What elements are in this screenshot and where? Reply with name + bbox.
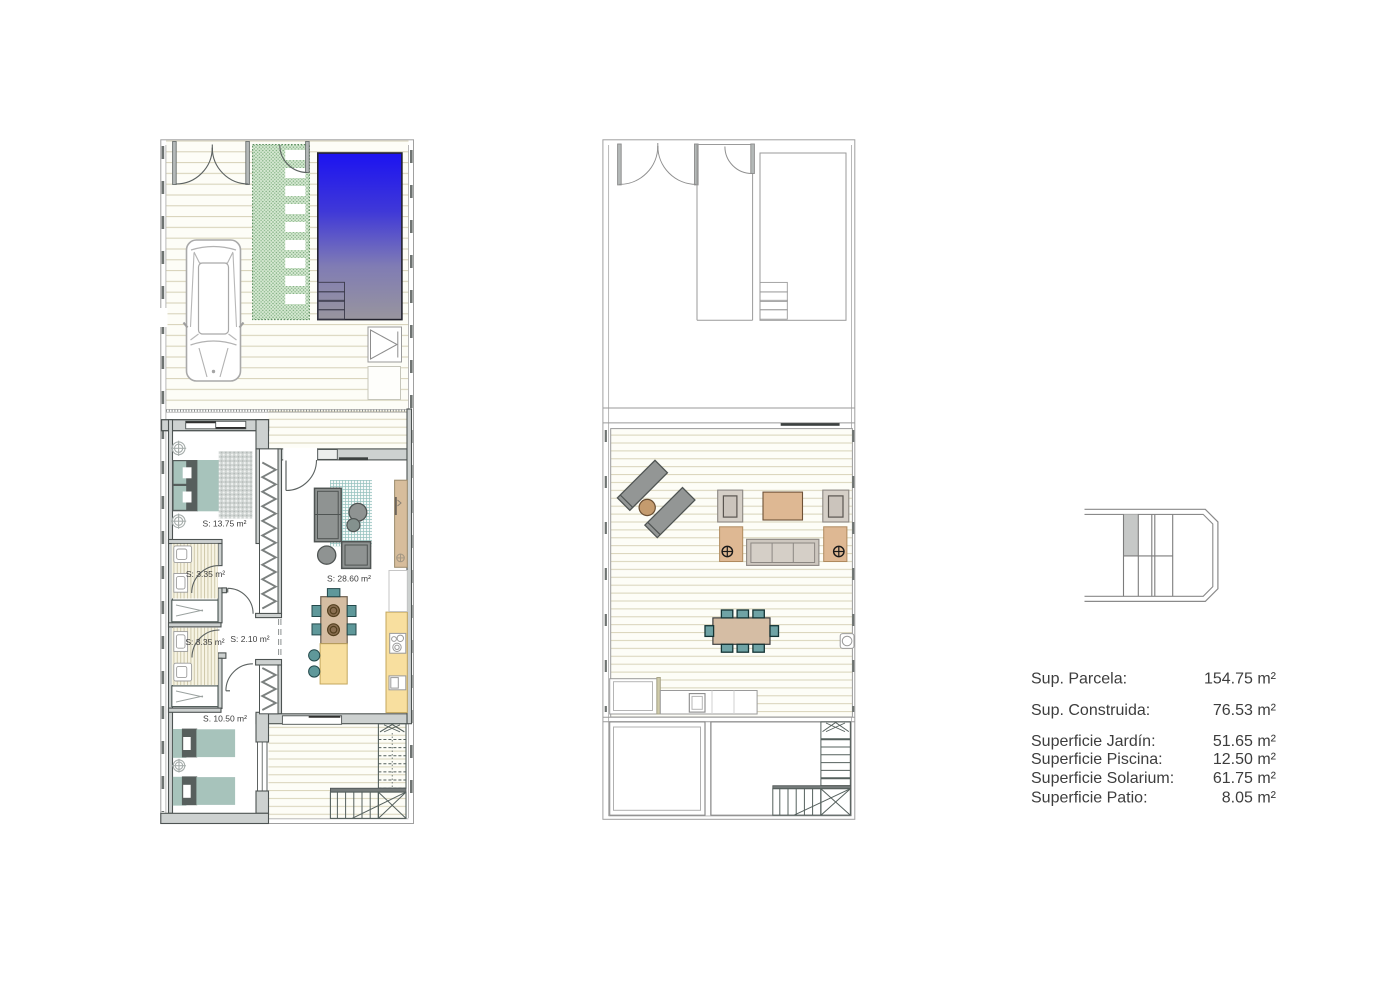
svg-text:51.65 m²: 51.65 m² (1213, 733, 1277, 750)
svg-text:S: 28.60 m²: S: 28.60 m² (327, 573, 371, 583)
svg-text:154.75 m²: 154.75 m² (1204, 671, 1277, 688)
svg-text:Superficie Jardín:: Superficie Jardín: (1031, 733, 1156, 750)
svg-text:Superficie Solarium:: Superficie Solarium: (1031, 770, 1174, 787)
svg-text:S: 2.10 m²: S: 2.10 m² (230, 634, 269, 644)
svg-text:8.05 m²: 8.05 m² (1222, 790, 1277, 807)
svg-text:12.50 m²: 12.50 m² (1213, 751, 1277, 768)
svg-text:Superficie Piscina:: Superficie Piscina: (1031, 751, 1163, 768)
svg-text:S: 13.75 m²: S: 13.75 m² (203, 519, 247, 529)
svg-text:S: 3.35 m²: S: 3.35 m² (185, 637, 224, 647)
svg-text:S. 10.50 m²: S. 10.50 m² (203, 714, 247, 724)
svg-text:Sup. Construida:: Sup. Construida: (1031, 702, 1150, 719)
svg-text:Sup. Parcela:: Sup. Parcela: (1031, 671, 1127, 688)
svg-text:S: 3.35 m²: S: 3.35 m² (186, 569, 225, 579)
svg-text:61.75 m²: 61.75 m² (1213, 770, 1277, 787)
svg-text:76.53 m²: 76.53 m² (1213, 702, 1277, 719)
svg-text:Superficie Patio:: Superficie Patio: (1031, 790, 1148, 807)
